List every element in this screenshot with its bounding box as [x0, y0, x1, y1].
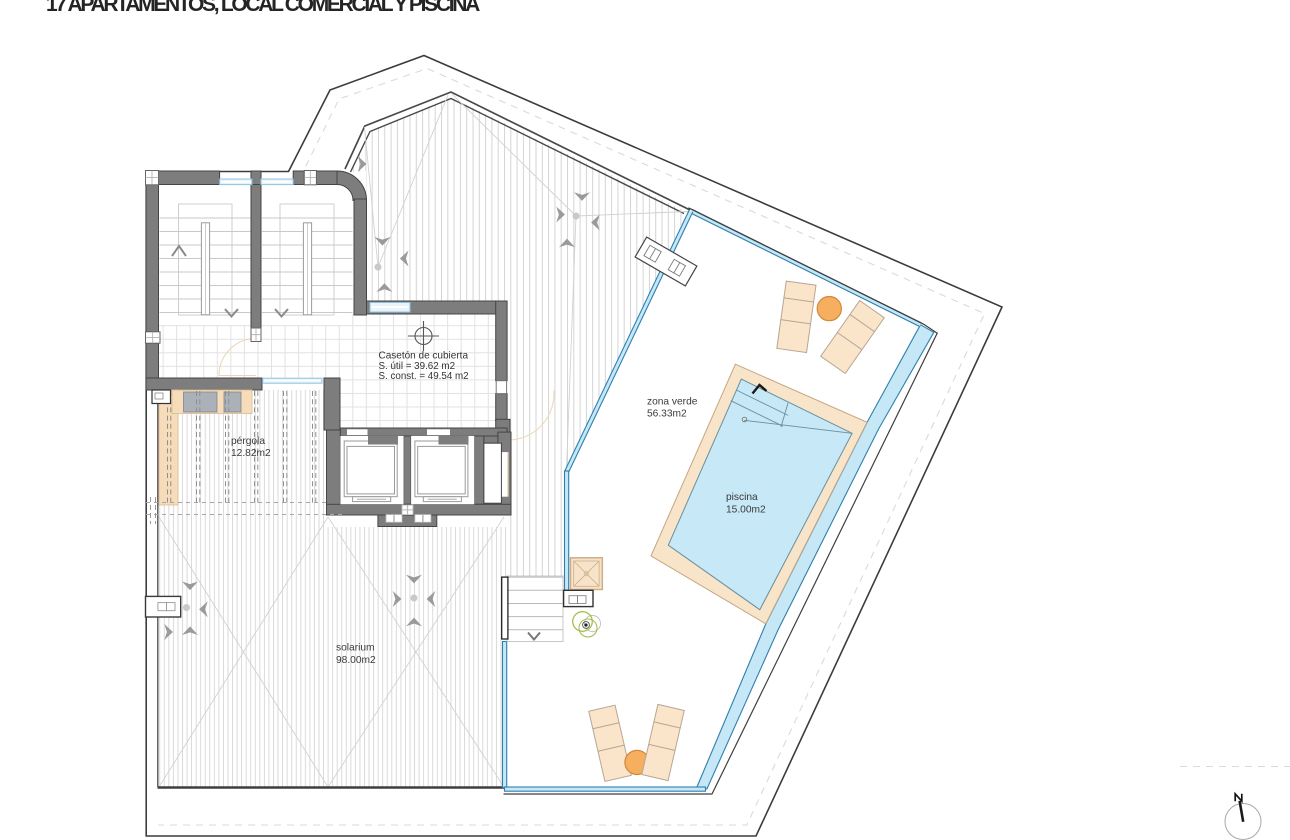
svg-text:zona verde: zona verde [647, 397, 698, 408]
svg-text:17 APARTAMENTOS, LOCAL COMERCI: 17 APARTAMENTOS, LOCAL COMERCIAL Y PISCI… [46, 0, 480, 16]
svg-text:12.82m2: 12.82m2 [231, 448, 271, 459]
svg-text:56.33m2: 56.33m2 [647, 409, 687, 420]
svg-text:pérgola: pérgola [231, 436, 265, 447]
svg-text:piscina: piscina [726, 492, 758, 503]
svg-text:solarium: solarium [336, 643, 375, 654]
svg-text:98.00m2: 98.00m2 [336, 655, 376, 666]
svg-text:S. const. = 49.54 m2: S. const. = 49.54 m2 [379, 371, 469, 382]
svg-text:15.00m2: 15.00m2 [726, 505, 766, 516]
